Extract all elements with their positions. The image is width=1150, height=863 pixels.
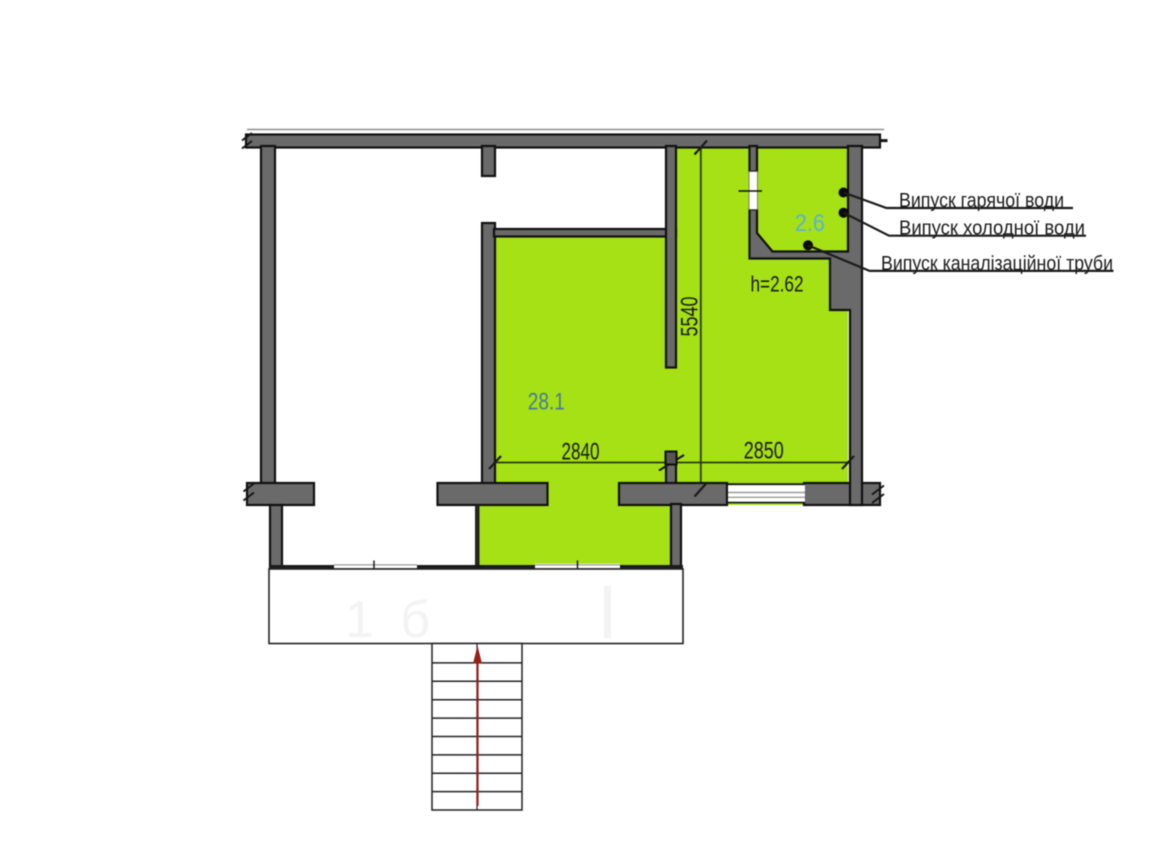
svg-text:2.6: 2.6 [795, 210, 825, 237]
svg-text:28.1: 28.1 [528, 389, 565, 416]
svg-text:Випуск каналізаційної труби: Випуск каналізаційної труби [881, 253, 1113, 275]
svg-text:2850: 2850 [744, 438, 784, 465]
svg-text:5540: 5540 [677, 297, 704, 337]
svg-text:1 б: 1 б [345, 591, 436, 649]
svg-text:h=2.62: h=2.62 [751, 272, 804, 297]
svg-text:2840: 2840 [562, 439, 600, 466]
svg-text:Випуск гарячої води: Випуск гарячої води [899, 190, 1064, 212]
svg-text:Випуск холодної води: Випуск холодної води [899, 218, 1085, 240]
